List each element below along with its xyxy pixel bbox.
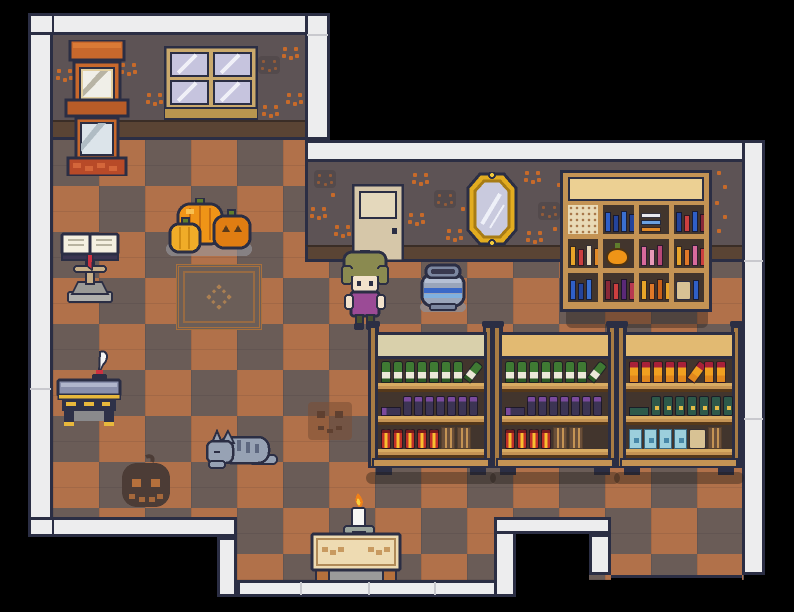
- bottle-cyan: [659, 429, 672, 449]
- cat-graphic: [205, 425, 283, 473]
- book-spine: [692, 211, 698, 232]
- pictures-graphic: [64, 40, 130, 176]
- bookshelf-cell: [568, 273, 598, 302]
- bookshelf-cell: [568, 205, 598, 234]
- player-character[interactable]: [340, 250, 390, 332]
- bottle-green: [553, 361, 563, 383]
- bottle-red: [417, 429, 427, 449]
- wall-pumpkin-face: [434, 190, 456, 208]
- bottle-purple: [458, 396, 467, 416]
- pumpkin-group: [162, 198, 256, 260]
- bottle-purple: [447, 396, 456, 416]
- wall-border-left-column: [28, 13, 53, 537]
- shelf-board: [626, 449, 732, 458]
- book-spine: [605, 280, 611, 300]
- bottle-green: [453, 361, 463, 383]
- game-viewport[interactable]: [0, 0, 794, 612]
- shelf-board: [502, 416, 608, 425]
- exterior-void: [611, 575, 742, 600]
- bottle-green-t: [462, 360, 483, 383]
- book-spine: [641, 246, 647, 266]
- bottle-green: [505, 361, 515, 383]
- bookshelf-cell: [674, 273, 704, 302]
- bottle-cyan: [674, 429, 687, 449]
- book-spine: [629, 282, 633, 300]
- store-shelves: [368, 322, 742, 492]
- book-spine: [657, 279, 663, 300]
- book-spine: [700, 248, 704, 266]
- bottle-green: [565, 361, 575, 383]
- stacked-book: [641, 220, 661, 225]
- exterior-void: [28, 537, 217, 600]
- bottle-sauce: [641, 361, 651, 383]
- bottle-green-t: [586, 360, 607, 383]
- shelf-top-board: [499, 332, 611, 359]
- border-seam: [307, 34, 328, 36]
- wall-pumpkin-face: [258, 56, 280, 74]
- border-seam: [744, 418, 763, 420]
- bottle-purple: [469, 396, 478, 416]
- wall-pumpkin-face: [282, 46, 300, 60]
- bookshelf-cell: [674, 239, 704, 268]
- book-spine: [594, 248, 598, 266]
- mirror-graphic: [466, 172, 518, 246]
- book-spine: [613, 215, 619, 232]
- shelf-row: [502, 359, 608, 383]
- bottle-teal-l: [629, 407, 649, 416]
- doorknob: [392, 228, 397, 234]
- store-shelf-unit-2[interactable]: [492, 322, 618, 484]
- shelf-row: [626, 425, 732, 449]
- bookshelf-cell: [674, 205, 704, 234]
- bottle-green: [441, 361, 451, 383]
- bottle-red: [517, 429, 527, 449]
- bottle-green: [577, 361, 587, 383]
- wall-pumpkin-face: [408, 212, 426, 226]
- window: [164, 46, 258, 120]
- shelf-row: [378, 392, 484, 416]
- bookshelf-cell: [603, 273, 633, 302]
- wall-border-corner-column: [305, 13, 330, 140]
- rug-diamond-motif: [206, 284, 231, 309]
- bottle-teal: [699, 396, 709, 416]
- shelf-row: [502, 425, 608, 449]
- player-sprite: [340, 250, 390, 332]
- candle-table-graphic: [310, 492, 402, 584]
- sleeping-cat[interactable]: [205, 425, 283, 473]
- shelf-row: [378, 425, 484, 449]
- bottle-sauce: [665, 361, 675, 383]
- bookshelf-cell: [603, 205, 633, 234]
- eye: [357, 281, 361, 286]
- wall-pumpkin-face: [722, 184, 728, 190]
- book-spine: [676, 246, 682, 266]
- shelf-shadow: [366, 472, 496, 484]
- bottle-red: [429, 429, 439, 449]
- border-seam: [52, 518, 54, 536]
- bookshelf-cell: [603, 239, 633, 268]
- border-seam: [434, 582, 436, 595]
- bottle-red: [393, 429, 403, 449]
- dark-pumpkin-graphic: [116, 453, 176, 513]
- bottle-purple: [414, 396, 423, 416]
- store-shelf-unit-1[interactable]: [368, 322, 494, 484]
- shelf-shadow: [490, 472, 620, 484]
- shelf-shadow: [614, 472, 744, 484]
- bottle-sauce: [704, 361, 714, 383]
- book-spine: [692, 245, 698, 266]
- bottle-boxit: [689, 429, 706, 449]
- bottle-red: [405, 429, 415, 449]
- book-spine: [570, 280, 576, 300]
- dark-pumpkin-floor-decal: [116, 453, 176, 513]
- wall-pumpkin-face: [262, 104, 280, 118]
- bookshelf-cell: [639, 239, 669, 268]
- shelf-board: [502, 383, 608, 392]
- shelf-board: [378, 416, 484, 425]
- bookshelf[interactable]: [560, 170, 712, 312]
- book-spine: [613, 283, 619, 300]
- shelf-body: [499, 359, 611, 458]
- floor-rug: [176, 264, 262, 330]
- bottle-slot: [553, 427, 567, 449]
- south-exit-opening[interactable]: [516, 534, 589, 600]
- bottle-green: [529, 361, 539, 383]
- bottle-purple: [571, 396, 580, 416]
- wall-pumpkin-face: [538, 202, 560, 220]
- rug-inner-border: [183, 271, 255, 323]
- wall-border-top-left-bar: [28, 13, 330, 35]
- shelf-body: [623, 359, 735, 458]
- bottle-teal: [687, 396, 697, 416]
- storage-box: [676, 281, 691, 300]
- book-lectern[interactable]: [60, 228, 120, 306]
- bookshelf-cells: [568, 205, 704, 302]
- wall-border-bottom-left-bar: [28, 517, 237, 537]
- stacked-book: [641, 213, 661, 218]
- book-spine: [700, 214, 704, 232]
- bottle-purple-l: [505, 407, 525, 416]
- wall-pumpkin-face: [526, 230, 544, 244]
- wall-pumpkin-face: [310, 206, 328, 220]
- bottle-purple: [436, 396, 445, 416]
- wall-pumpkin-face: [314, 170, 336, 188]
- writing-desk-with-quill: [56, 350, 122, 428]
- book-spine: [641, 280, 647, 300]
- shelf-base: [372, 458, 490, 468]
- shelf-base: [620, 458, 738, 468]
- border-seam: [30, 388, 51, 390]
- book-spine: [684, 215, 690, 232]
- bottle-purple: [549, 396, 558, 416]
- store-shelf-unit-3[interactable]: [616, 322, 742, 484]
- bottle-purple: [527, 396, 536, 416]
- border-seam: [744, 260, 763, 262]
- desk-graphic: [56, 350, 122, 428]
- bottle-slot: [441, 427, 455, 449]
- closed-eye: [214, 451, 220, 453]
- border-seam: [300, 582, 302, 595]
- bottle-cyan: [629, 429, 642, 449]
- bottle-slot: [457, 427, 471, 449]
- wall-pumpkin-face: [330, 192, 336, 198]
- bottle-sauce: [629, 361, 639, 383]
- book-spine: [578, 249, 584, 266]
- wall-pumpkin-face: [714, 200, 720, 206]
- bottle-purple: [403, 396, 412, 416]
- bottle-green: [429, 361, 439, 383]
- bottle-green: [381, 361, 391, 383]
- bottle-purple: [582, 396, 591, 416]
- wall-pumpkin-face: [412, 172, 430, 186]
- exit-doorframe-top: [494, 517, 611, 534]
- shelf-row: [502, 392, 608, 416]
- pumpkin-face-floor-tile: [308, 402, 352, 440]
- bottle-purple: [425, 396, 434, 416]
- wall-pumpkin-face: [146, 92, 164, 106]
- bottle-sauce: [653, 361, 663, 383]
- pot-graphic: [414, 256, 472, 314]
- exit-doorframe-right-post: [589, 534, 611, 575]
- wall-border-top-right-bar: [305, 140, 765, 162]
- book-spine: [693, 280, 699, 300]
- wall-pumpkin-face: [722, 214, 728, 220]
- bottle-slot: [708, 427, 722, 449]
- bottle-purple: [538, 396, 547, 416]
- bottle-teal: [675, 396, 685, 416]
- shelf-row: [626, 392, 732, 416]
- shelf-top-board: [375, 332, 487, 359]
- book-spine: [621, 211, 627, 232]
- bottle-slot: [569, 427, 583, 449]
- book-spine: [665, 282, 669, 300]
- wall-pumpkin-face: [716, 170, 722, 176]
- shelf-board: [502, 449, 608, 458]
- wall-border-step-column: [217, 537, 237, 597]
- lectern-graphic: [60, 228, 120, 306]
- shelf-body: [375, 359, 487, 458]
- wall-pumpkin-face: [552, 226, 558, 232]
- book-spine: [657, 245, 663, 266]
- bottle-green: [517, 361, 527, 383]
- bottle-purple: [593, 396, 602, 416]
- shelf-board: [378, 383, 484, 392]
- book-spine: [605, 212, 611, 232]
- bookshelf-cell: [639, 273, 669, 302]
- bottle-sauce: [677, 361, 687, 383]
- wall-pumpkin-face: [716, 228, 722, 234]
- book-spine: [586, 279, 592, 300]
- shelf-board: [626, 416, 732, 425]
- eye: [369, 281, 373, 286]
- oval-mirror: [466, 172, 518, 246]
- framed-pictures-stack: [64, 40, 130, 176]
- bookshelf-cell: [568, 239, 598, 268]
- shelf-row: [378, 359, 484, 383]
- bottle-teal: [711, 396, 721, 416]
- shelf-row: [626, 359, 732, 383]
- bottle-red: [505, 429, 515, 449]
- bottle-red: [529, 429, 539, 449]
- bottle-teal: [651, 396, 661, 416]
- bottle-teal: [723, 396, 733, 416]
- stacked-book: [641, 227, 661, 232]
- book-spine: [684, 249, 690, 266]
- candle-table: [310, 492, 402, 584]
- bookshelf-cell: [639, 205, 669, 234]
- bottle-green: [417, 361, 427, 383]
- bottle-purple: [560, 396, 569, 416]
- wall-pumpkin-face: [286, 92, 304, 106]
- bottle-cyan: [644, 429, 657, 449]
- bottle-green: [405, 361, 415, 383]
- book-spine: [629, 214, 633, 232]
- bookshelf-banner: [568, 177, 704, 201]
- bottle-teal: [663, 396, 673, 416]
- wall-pumpkin-face: [446, 228, 464, 242]
- bottle-red: [381, 429, 391, 449]
- bottle-purple-l: [381, 407, 401, 416]
- book-spine: [676, 212, 682, 232]
- shelf-board: [626, 383, 732, 392]
- book-spine: [649, 249, 655, 266]
- border-seam: [52, 14, 54, 34]
- shelf-pumpkin: [606, 248, 629, 266]
- shelf-top-board: [623, 332, 735, 359]
- bottle-red: [541, 429, 551, 449]
- book-spine: [578, 283, 584, 300]
- book-spine: [649, 283, 655, 300]
- blue-pot: [414, 256, 472, 314]
- bottle-green: [393, 361, 403, 383]
- bottle-sauce: [716, 361, 726, 383]
- book-spine: [570, 246, 576, 266]
- wall-border-right-column: [742, 140, 765, 575]
- shelf-base: [496, 458, 614, 468]
- window-graphic: [164, 46, 258, 120]
- pumpkins-graphic: [162, 198, 256, 260]
- book-spine: [621, 279, 627, 300]
- wall-pumpkin-face: [334, 224, 352, 238]
- bottle-green: [541, 361, 551, 383]
- wall-pumpkin-face: [524, 170, 542, 184]
- book-spine: [586, 245, 592, 266]
- shelf-board: [378, 449, 484, 458]
